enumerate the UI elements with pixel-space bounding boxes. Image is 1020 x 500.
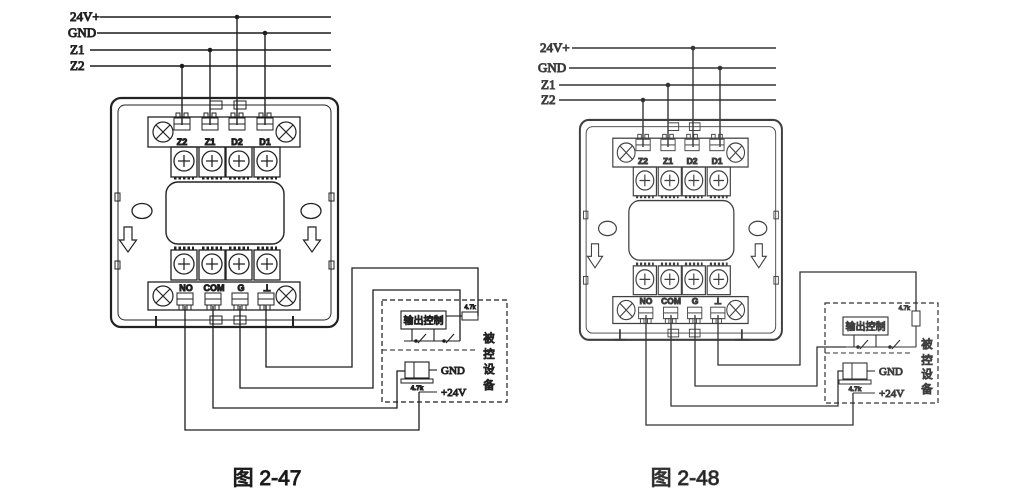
- gnd-signal-label-right: GND: [879, 366, 903, 378]
- terminal-label-no: NO: [179, 283, 193, 293]
- output-control-label-right: 输出控制: [846, 320, 886, 333]
- svg-text:控: 控: [921, 353, 933, 367]
- terminal-label-com-right: COM: [661, 296, 681, 306]
- eol-resistor: [462, 312, 478, 320]
- terminal-label-g: G: [237, 283, 244, 293]
- diagram-left: 24V+ GND Z1 Z2 Z2 Z1 D2 D1 NO COM G ⊥: [68, 9, 507, 490]
- input-resistor-label-right: 4.7k: [849, 386, 862, 393]
- bus-junction-dots-right: [641, 46, 723, 103]
- bus-label-gnd-right: GND: [538, 60, 566, 75]
- terminal-label-d1-right: D1: [712, 156, 723, 166]
- terminal-label-d2-right: D2: [687, 156, 698, 166]
- controlled-device-name-right: 被 控 设 备: [921, 338, 933, 396]
- terminal-label-z1: Z1: [205, 137, 216, 147]
- input-component: [405, 362, 429, 378]
- terminal-label-z2: Z2: [177, 137, 188, 147]
- input-resistor-label: 4.7k: [411, 385, 424, 392]
- bus-label-z2-right: Z2: [541, 92, 555, 107]
- caption-left: 图 2-47: [233, 467, 302, 490]
- io-module-right: [580, 120, 782, 340]
- bus-label-24v-right: 24V+: [540, 40, 570, 55]
- bus-label-z1: Z1: [70, 42, 84, 57]
- output-control-label: 输出控制: [404, 314, 444, 327]
- eol-resistor-label-right: 4.7k: [899, 306, 911, 312]
- bus-junction-dots-left: [180, 15, 268, 69]
- terminal-label-com: COM: [204, 283, 225, 293]
- svg-text:设: 设: [483, 363, 495, 376]
- power-signal-label-right: +24V: [879, 388, 904, 400]
- eol-resistor-right: [912, 311, 920, 326]
- terminal-label-d2: D2: [231, 137, 243, 147]
- terminal-label-d1: D1: [259, 137, 271, 147]
- input-component-right: [843, 363, 867, 379]
- wiring-diagrams-canvas: 24V+ GND Z1 Z2 Z2 Z1 D2 D1 NO COM G ⊥: [0, 0, 1020, 500]
- gnd-signal-label: GND: [441, 365, 465, 377]
- svg-text:备: 备: [921, 382, 933, 396]
- bus-label-z2: Z2: [70, 58, 84, 73]
- caption-right: 图 2-48: [651, 467, 720, 490]
- wiring-figure: 24V+ GND Z1 Z2 Z2 Z1 D2 D1 NO COM G ⊥: [0, 0, 1020, 500]
- diagram-right: 24V+ GND Z1 Z2 Z2 Z1 D2 D1 NO COM G ⊥: [538, 40, 938, 490]
- power-signal-label: +24V: [441, 387, 466, 399]
- eol-resistor-label: 4.7k: [464, 305, 476, 311]
- terminal-label-common-right: ⊥: [714, 296, 722, 306]
- svg-text:设: 设: [921, 368, 933, 381]
- bus-label-z1-right: Z1: [541, 77, 555, 92]
- controlled-device-name: 被 控 设 备: [483, 332, 495, 392]
- bus-label-gnd: GND: [68, 25, 96, 40]
- io-module: [111, 98, 338, 327]
- bus-label-24v: 24V+: [70, 9, 100, 24]
- svg-text:被: 被: [483, 332, 495, 345]
- terminal-label-g-right: G: [692, 296, 699, 306]
- terminal-label-z2-right: Z2: [638, 156, 648, 166]
- terminal-label-no-right: NO: [640, 296, 653, 306]
- terminal-label-z1-right: Z1: [663, 156, 673, 166]
- svg-text:备: 备: [483, 378, 495, 392]
- svg-text:被: 被: [921, 338, 933, 351]
- terminal-label-common: ⊥: [263, 283, 271, 293]
- svg-text:控: 控: [483, 347, 495, 361]
- bus-wires-right: [559, 48, 776, 147]
